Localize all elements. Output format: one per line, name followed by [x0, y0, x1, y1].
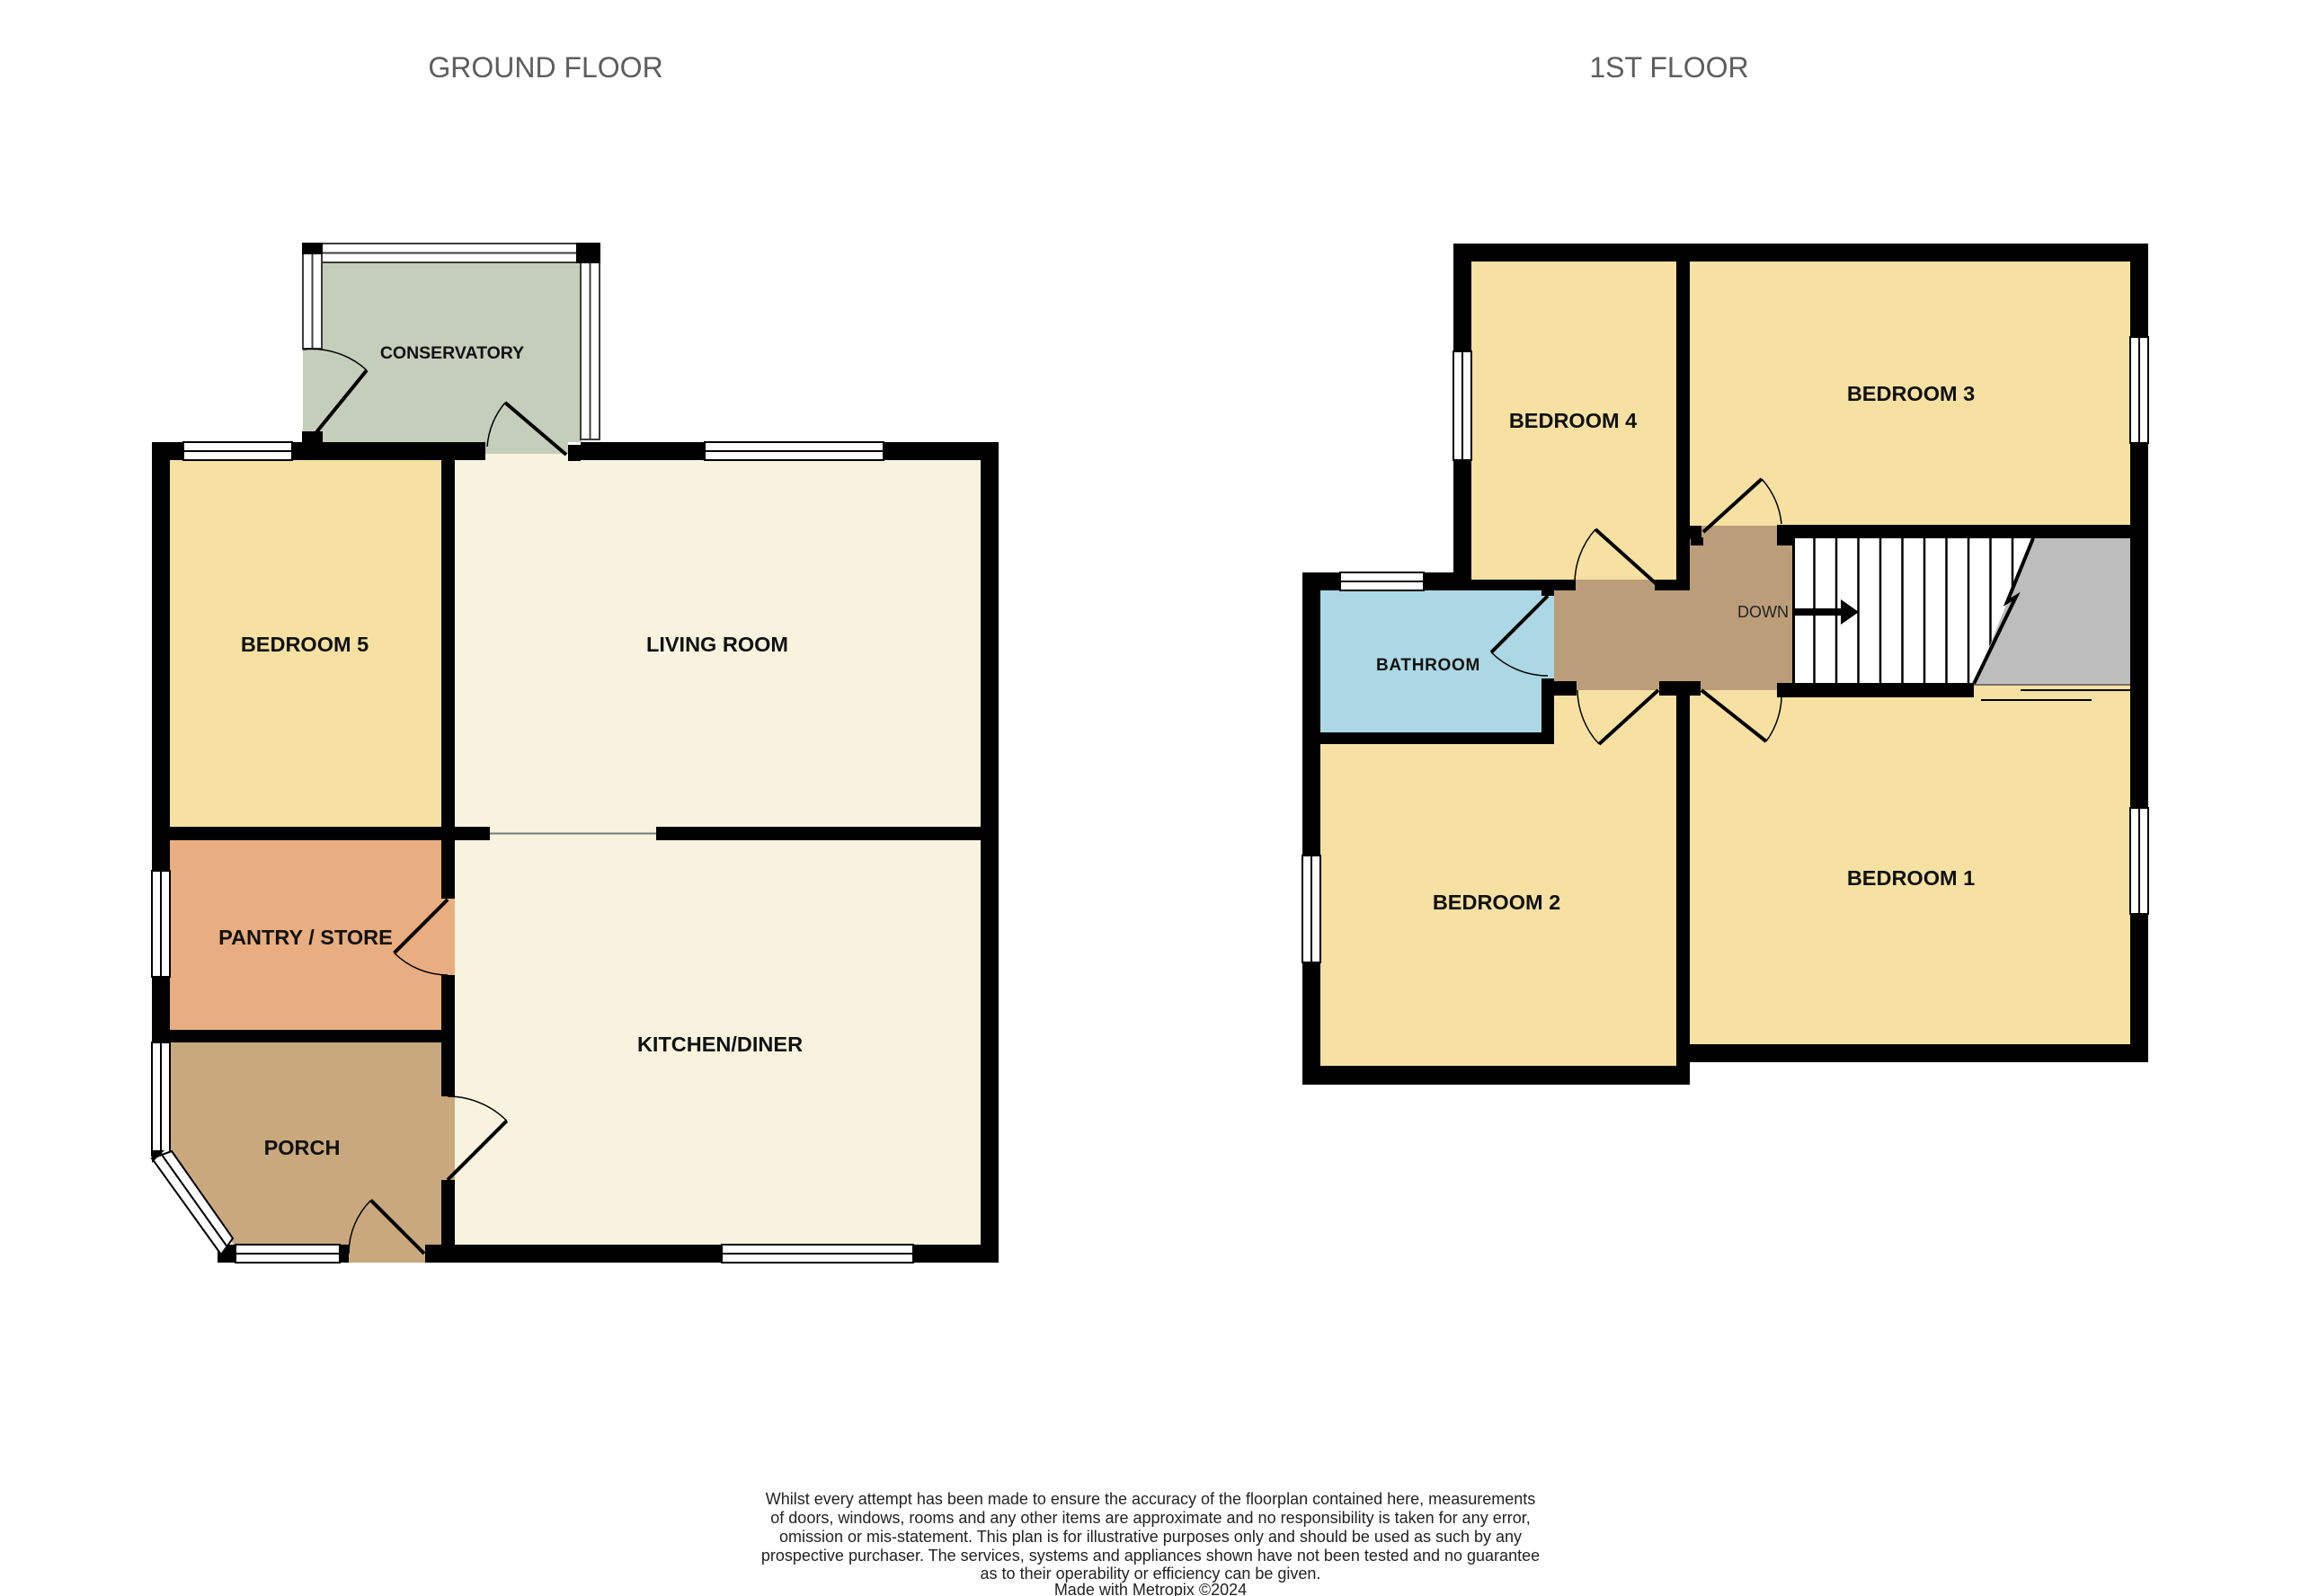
svg-text:DOWN: DOWN: [1737, 603, 1789, 621]
svg-text:LIVING ROOM: LIVING ROOM: [646, 633, 788, 656]
svg-text:BEDROOM 4: BEDROOM 4: [1509, 409, 1637, 432]
svg-text:of doors, windows, rooms and a: of doors, windows, rooms and any other i…: [770, 1509, 1530, 1527]
svg-text:as to their operability or eff: as to their operability or efficiency ca…: [981, 1565, 1321, 1583]
svg-text:BEDROOM 2: BEDROOM 2: [1433, 891, 1560, 914]
svg-text:KITCHEN/DINER: KITCHEN/DINER: [637, 1033, 803, 1056]
svg-text:CONSERVATORY: CONSERVATORY: [380, 343, 524, 363]
svg-text:PORCH: PORCH: [264, 1136, 341, 1159]
svg-text:Whilst every attempt has been: Whilst every attempt has been made to en…: [766, 1490, 1535, 1508]
svg-text:BEDROOM 5: BEDROOM 5: [241, 633, 369, 656]
svg-text:PANTRY / STORE: PANTRY / STORE: [218, 926, 393, 949]
svg-text:omission or mis-statement. Thi: omission or mis-statement. This plan is …: [779, 1528, 1522, 1546]
svg-text:prospective purchaser. The ser: prospective purchaser. The services, sys…: [761, 1547, 1540, 1565]
svg-text:BATHROOM: BATHROOM: [1376, 656, 1480, 675]
svg-text:GROUND FLOOR: GROUND FLOOR: [428, 51, 662, 84]
svg-text:1ST FLOOR: 1ST FLOOR: [1589, 51, 1748, 84]
svg-text:Made with Metropix ©2024: Made with Metropix ©2024: [1054, 1581, 1247, 1596]
svg-text:BEDROOM 3: BEDROOM 3: [1847, 382, 1975, 405]
svg-text:BEDROOM 1: BEDROOM 1: [1847, 866, 1975, 890]
